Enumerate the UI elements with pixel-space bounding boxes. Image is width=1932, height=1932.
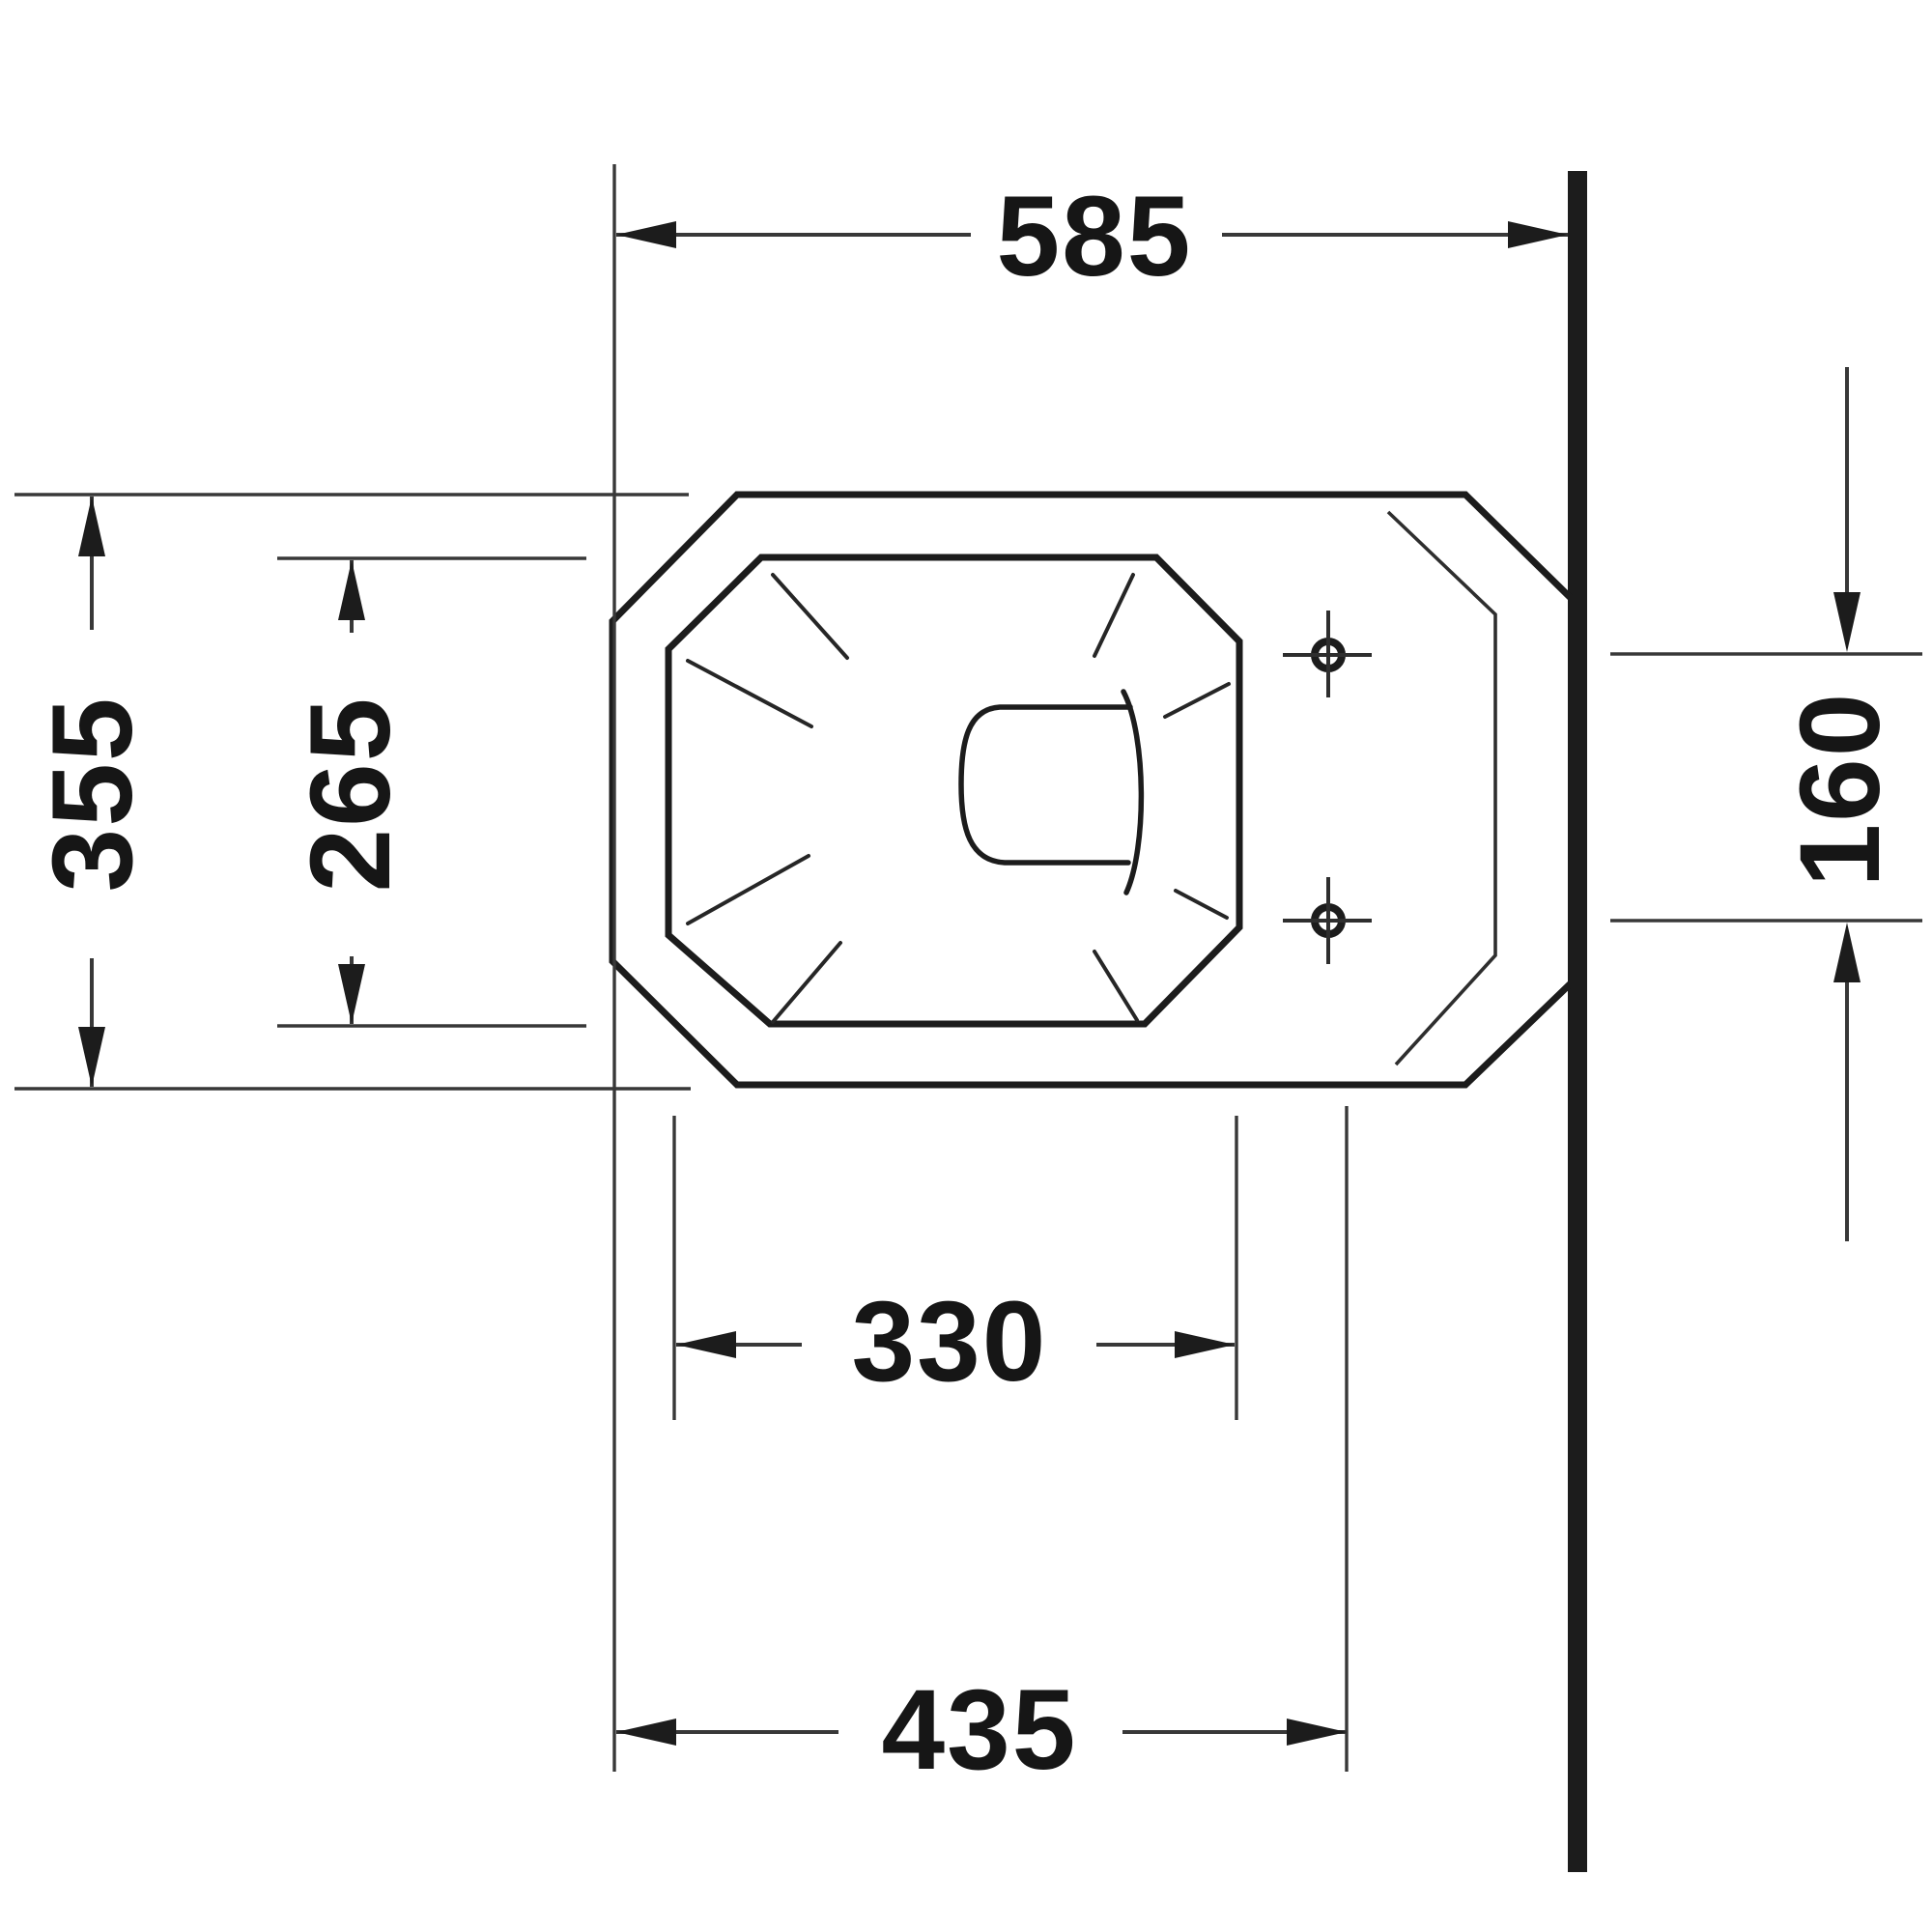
dim-355-arrow-up-icon — [78, 497, 105, 556]
outer-octagon — [612, 495, 1572, 1085]
ray-bottom-right-2 — [1094, 952, 1137, 1020]
dimension-overall-width: 585 — [616, 173, 1568, 300]
dim-355-label: 355 — [29, 696, 156, 893]
dimension-bowl-width: 330 — [676, 1278, 1235, 1406]
toilet-plan-drawing: 585 355 265 160 330 — [0, 0, 1932, 1932]
ray-bottom-left-2 — [773, 943, 840, 1022]
dimension-overall-depth: 355 — [29, 497, 156, 1087]
dim-265-arrow-down-icon — [338, 964, 365, 1024]
ray-bottom-left-1 — [688, 856, 809, 923]
dim-355-arrow-down-icon — [78, 1027, 105, 1087]
dimension-hole-spacing: 160 — [1776, 367, 1904, 1241]
dim-330-arrow-left-icon — [676, 1331, 736, 1358]
dimension-front-to-outlet: 435 — [616, 1666, 1347, 1794]
ray-top-right-2 — [1165, 684, 1229, 717]
dim-265-arrow-up-icon — [338, 560, 365, 620]
ray-bottom-right-1 — [1176, 891, 1227, 918]
dim-330-arrow-right-icon — [1175, 1331, 1235, 1358]
fixing-hole-bottom-icon — [1283, 877, 1372, 964]
fixing-hole-top-crosshair — [1283, 611, 1372, 697]
wall-line — [1568, 171, 1587, 1872]
toilet-body-outline — [612, 495, 1572, 1085]
dim-585-arrow-right-icon — [1508, 221, 1568, 248]
back-contour-line — [1388, 512, 1495, 1065]
ray-top-left-1 — [773, 575, 847, 658]
fixing-hole-bottom-crosshair — [1283, 877, 1372, 964]
dim-330-label: 330 — [852, 1278, 1048, 1406]
dim-160-arrow-down-icon — [1833, 592, 1861, 652]
dimension-bowl-depth: 265 — [287, 560, 414, 1024]
technical-drawing-canvas: 585 355 265 160 330 — [0, 0, 1932, 1932]
surface-hatch-rays — [688, 575, 1229, 1022]
bowl-outline — [961, 707, 1130, 863]
dim-435-arrow-right-icon — [1287, 1719, 1347, 1746]
dim-435-arrow-left-icon — [616, 1719, 676, 1746]
extension-lines — [14, 164, 1922, 1772]
inner-rim-octagon — [668, 557, 1239, 1024]
dim-160-label: 160 — [1776, 692, 1904, 888]
dim-435-label: 435 — [882, 1666, 1078, 1794]
ray-top-right-1 — [1094, 575, 1133, 656]
dim-585-label: 585 — [997, 173, 1193, 300]
fixing-hole-top-icon — [1283, 611, 1372, 697]
ray-top-left-2 — [688, 661, 811, 726]
dim-265-label: 265 — [287, 696, 414, 893]
dim-585-arrow-left-icon — [616, 221, 676, 248]
dim-160-arrow-up-icon — [1833, 923, 1861, 982]
